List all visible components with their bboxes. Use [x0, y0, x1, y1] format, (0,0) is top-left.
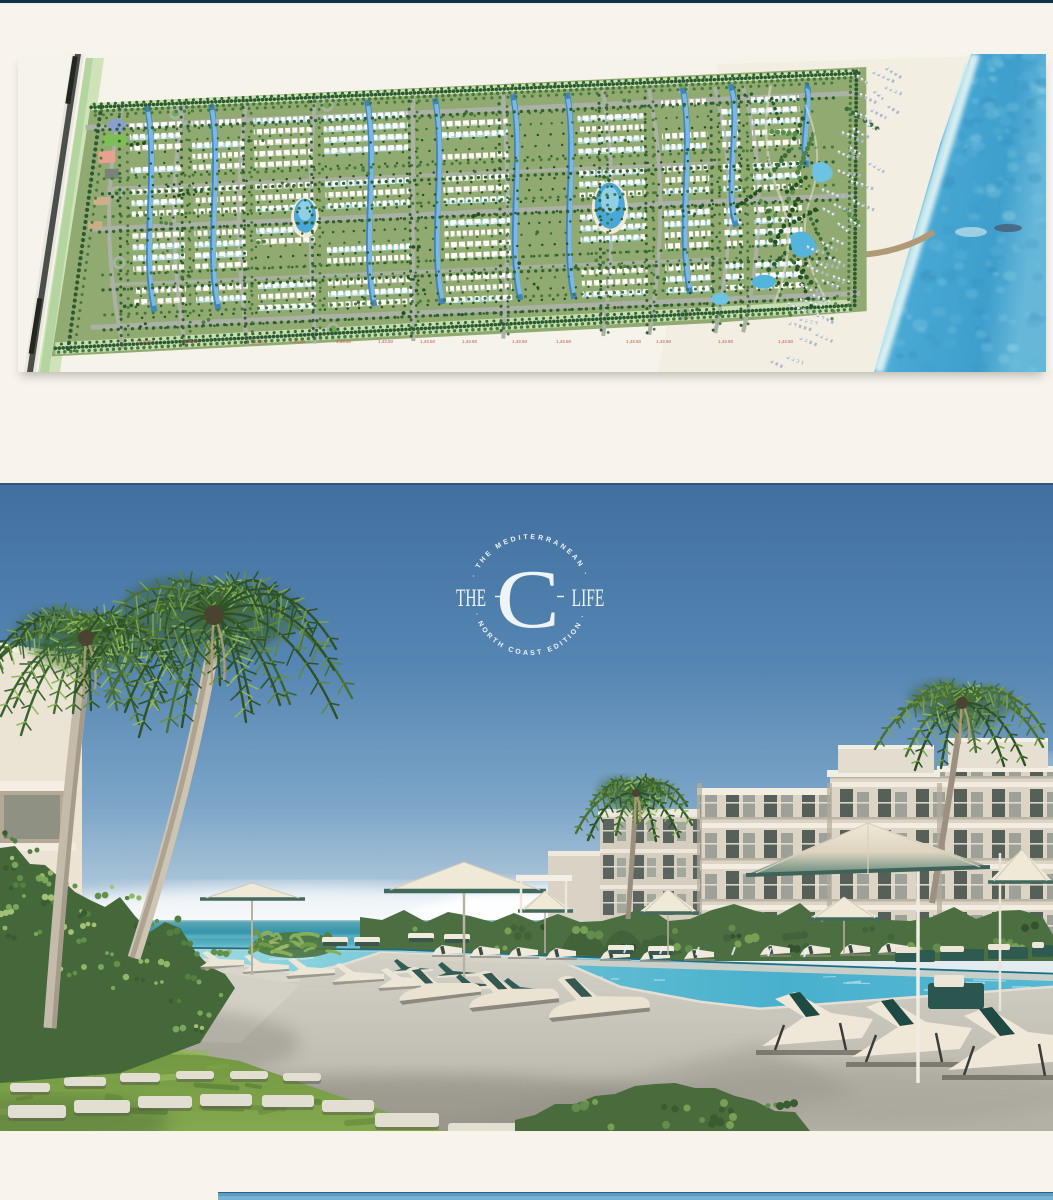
svg-text:LIFE: LIFE: [572, 584, 605, 612]
svg-text:1,43.50: 1,43.50: [656, 339, 672, 344]
svg-text:THE: THE: [456, 584, 486, 612]
svg-text:1,43.50: 1,43.50: [626, 339, 642, 344]
svg-text:1,43.50: 1,43.50: [336, 339, 352, 344]
svg-text:1,43.50: 1,43.50: [778, 339, 794, 344]
svg-text:1,43.50: 1,43.50: [462, 339, 478, 344]
svg-text:1,43.50: 1,43.50: [183, 339, 199, 344]
svg-text:1,43.50: 1,43.50: [378, 339, 394, 344]
svg-text:C: C: [496, 553, 560, 645]
svg-text:1,43.50: 1,43.50: [250, 339, 266, 344]
svg-text:1,43.50: 1,43.50: [290, 339, 306, 344]
svg-text:1,43.50: 1,43.50: [512, 339, 528, 344]
svg-text:1,43.50: 1,43.50: [556, 339, 572, 344]
svg-text:1,43.50: 1,43.50: [420, 339, 436, 344]
svg-text:1,43.50: 1,43.50: [136, 339, 152, 344]
svg-text:1,43.50: 1,43.50: [718, 339, 734, 344]
